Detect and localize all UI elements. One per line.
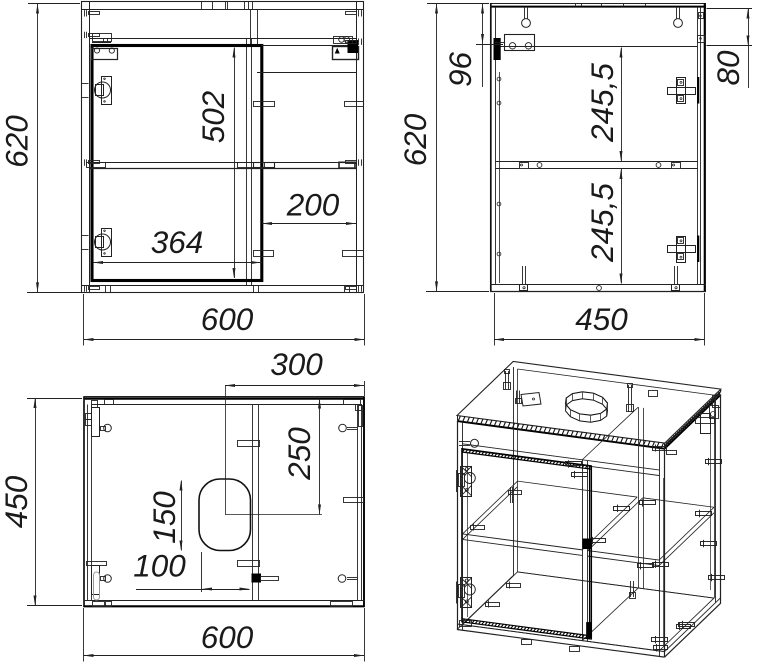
svg-text:620: 620 xyxy=(397,113,433,166)
svg-text:502: 502 xyxy=(195,90,231,143)
svg-text:80: 80 xyxy=(710,50,746,86)
svg-text:300: 300 xyxy=(270,346,323,382)
svg-text:600: 600 xyxy=(201,301,254,337)
svg-text:450: 450 xyxy=(0,475,34,528)
svg-text:245,5: 245,5 xyxy=(584,63,620,143)
svg-text:620: 620 xyxy=(0,115,35,168)
svg-text:200: 200 xyxy=(286,187,340,223)
svg-text:245,5: 245,5 xyxy=(584,183,620,263)
svg-text:96: 96 xyxy=(442,52,478,88)
svg-text:250: 250 xyxy=(281,427,317,481)
svg-text:150: 150 xyxy=(146,491,182,544)
svg-text:364: 364 xyxy=(151,224,204,260)
svg-text:600: 600 xyxy=(201,619,254,655)
svg-text:450: 450 xyxy=(575,301,628,337)
svg-text:100: 100 xyxy=(133,548,186,584)
